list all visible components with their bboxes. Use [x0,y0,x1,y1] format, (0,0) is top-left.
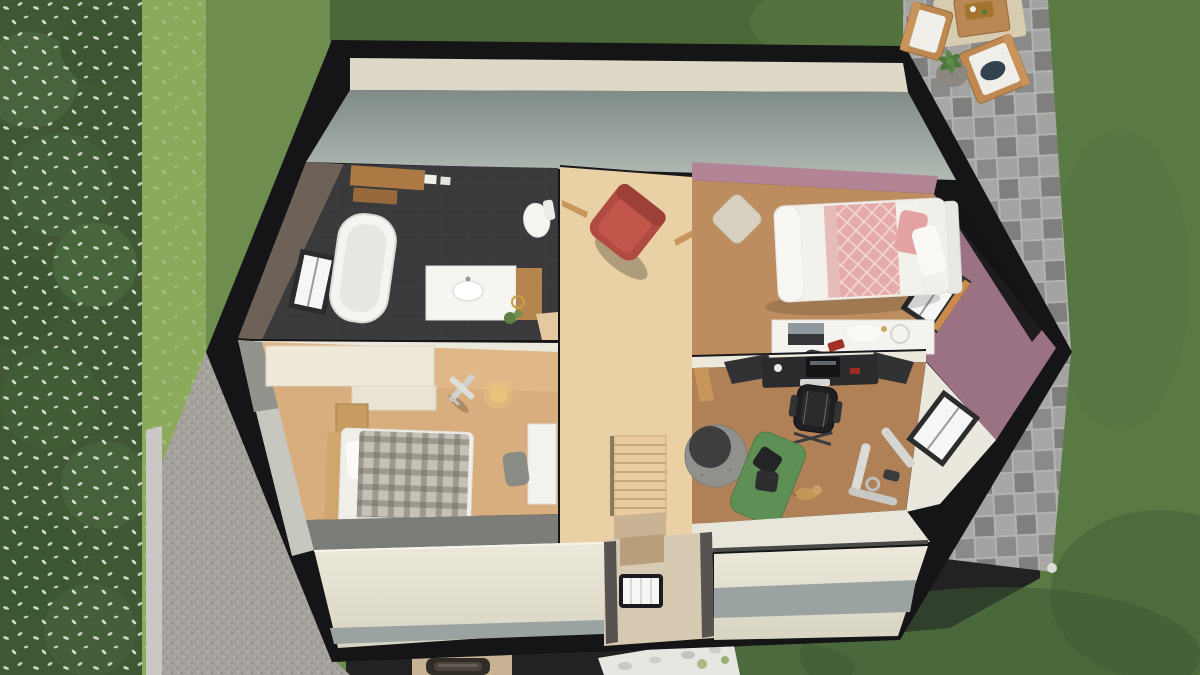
laptop-base [788,334,824,345]
scene-svg [0,0,1200,675]
monitor [806,357,840,377]
stair-shadow [620,534,664,566]
floorplan-render [0,0,1200,675]
grass-mottle [1050,130,1190,430]
kids-wall-desk [528,424,556,504]
coffee-table [953,0,1010,37]
stair-rail [610,436,614,516]
north-wall-top-band [350,58,908,92]
curb-strip [146,426,162,675]
room-hallway [560,166,704,548]
staircase [610,436,666,548]
kids-desk-chair [502,450,530,487]
bean-bag [685,425,747,487]
plaid-bed [324,427,473,530]
master-desk [772,320,934,354]
plaid-duvet [356,431,469,529]
glowing-lamp [483,379,513,409]
entry-doormat [621,576,661,606]
entry-stairwell [604,532,714,646]
pink-diamond-panel [836,202,901,297]
vanity-sink [426,266,542,324]
canopy-flowers [0,0,150,675]
master-bed [760,197,964,319]
papers [847,325,881,341]
laptop-lid [788,323,824,335]
duvet-roll [774,205,805,302]
garden-ball [1047,563,1057,573]
